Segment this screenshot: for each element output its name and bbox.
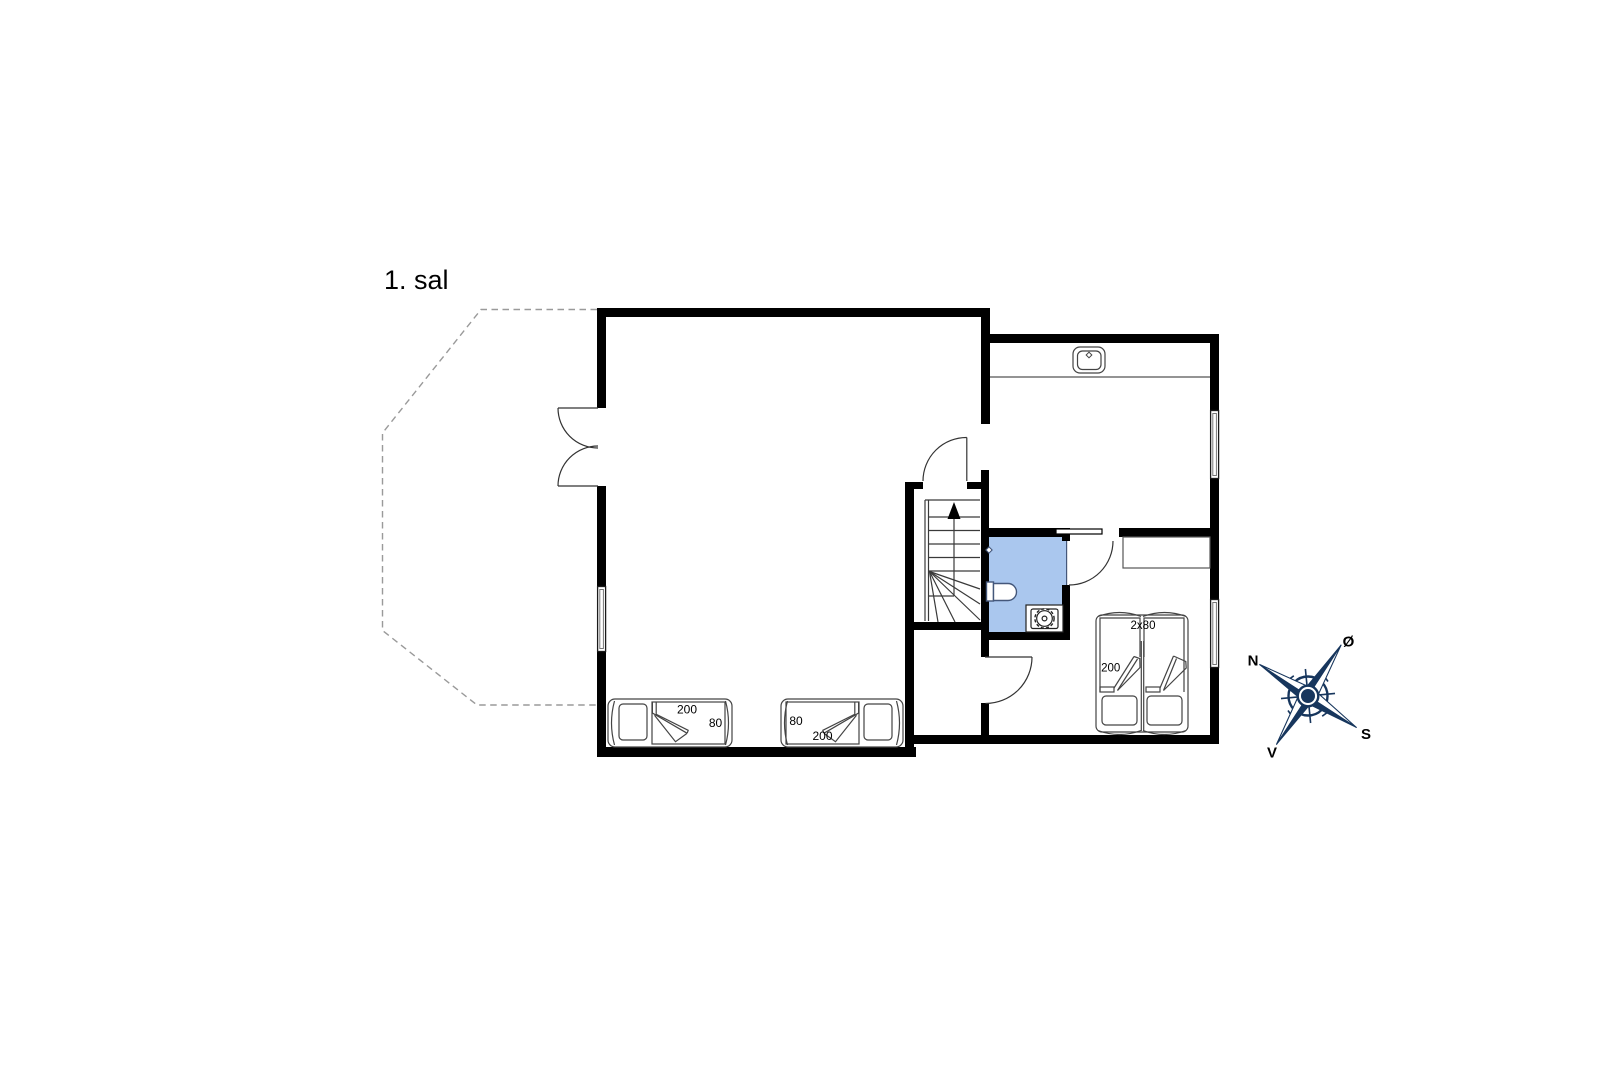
svg-text:80: 80 <box>709 716 723 730</box>
svg-text:80: 80 <box>789 714 803 728</box>
svg-text:V: V <box>1267 745 1277 762</box>
svg-text:200: 200 <box>812 729 832 743</box>
svg-text:N: N <box>1248 653 1259 670</box>
svg-text:S: S <box>1361 726 1371 743</box>
svg-text:200: 200 <box>677 703 697 717</box>
svg-text:Ø: Ø <box>1343 634 1355 651</box>
svg-text:1. sal: 1. sal <box>384 265 449 295</box>
svg-text:200: 200 <box>1101 663 1120 675</box>
svg-text:2x80: 2x80 <box>1131 620 1156 632</box>
